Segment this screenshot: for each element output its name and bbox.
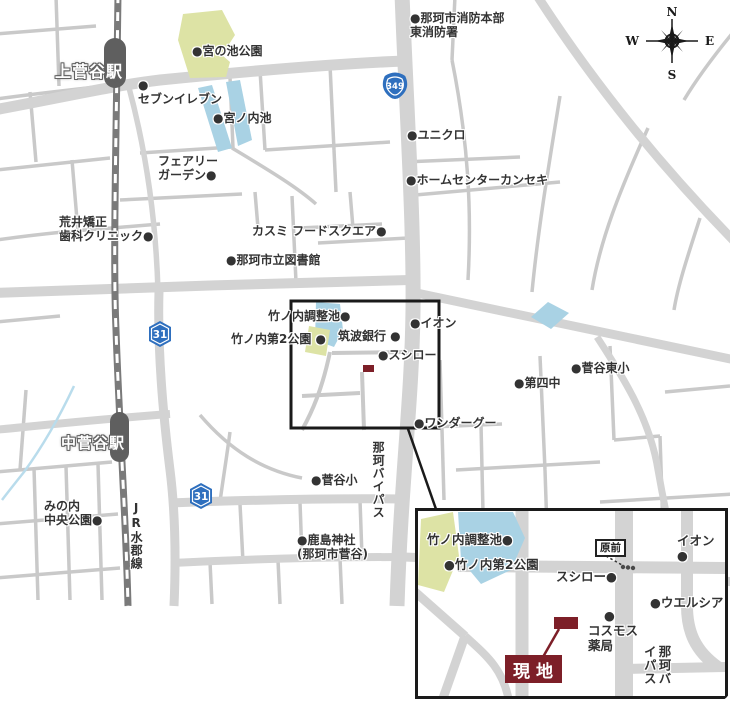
poi-sugaya-elem: ●菅谷小 <box>311 473 357 487</box>
poi-sugaya-higashi-elem: ●菅谷東小 <box>571 361 629 375</box>
poi-wonder-goo: ●ワンダーグー <box>414 416 496 430</box>
poi-naka-library: ●那珂市立図書館 <box>226 253 320 267</box>
inset-poi-aeon: イオン● <box>677 534 725 564</box>
inset-poi-welcia: ●ウエルシア <box>650 596 723 611</box>
compass-e-label: E <box>705 34 714 48</box>
inset-map: 竹ノ内調整池● ●竹ノ内第2公園 スシロー● イオン● ●ウエルシア ● コスモ… <box>415 508 728 699</box>
poi-kashima-shrine: ●鹿島神社 (那珂市菅谷) <box>297 533 368 561</box>
poi-dai4-junior: ●第四中 <box>514 376 560 390</box>
poi-dai2-park: 竹ノ内第2公園 ● <box>231 332 326 346</box>
compass-rose: N S W E <box>625 5 715 82</box>
poi-tsukuba-bank: 筑波銀行 ● <box>338 329 401 343</box>
inset-poi-chosei-pond: 竹ノ内調整池● <box>427 533 513 548</box>
poi-aeon: ●イオン <box>410 316 456 330</box>
route-shield-31-north: 31 <box>149 321 171 347</box>
site-block-streets <box>302 352 408 430</box>
station-label-nakasugaya: 中菅谷駅 <box>61 432 125 453</box>
inset-poi-sushiro: スシロー● <box>556 570 617 585</box>
station-label-kamisugaya: 上菅谷駅 <box>55 58 123 82</box>
route-shield-31-number: 31 <box>153 329 168 341</box>
road-label-naka-bypass: 那珂バイパス <box>371 441 385 519</box>
route-shield-349-number: 349 <box>386 82 404 92</box>
poi-arai-dental: 荒井矯正 歯科クリニック● <box>59 215 153 243</box>
poi-seven-eleven: ● セブンイレブン <box>138 78 222 106</box>
site-callout: 現地 <box>505 655 562 683</box>
poi-miyanouchi-pond: ●宮ノ内池 <box>213 111 271 125</box>
inset-chosei-pond-shape <box>458 512 525 584</box>
inset-dai2-park-shape <box>418 512 459 592</box>
location-map: 349 31 31 N S W E <box>0 0 730 701</box>
zoom-connector-line <box>408 429 437 512</box>
compass-w-label: W <box>625 34 640 48</box>
compass-n-label: N <box>667 5 678 19</box>
route-shield-349: 349 <box>384 74 405 98</box>
inset-road-label-naka-bypass: 那珂バイパス <box>641 645 671 696</box>
rail-label-jr-suigun: JR水郡線 <box>129 501 143 570</box>
bus-stop-sign: 原前 <box>595 539 626 557</box>
poi-sushiro: ●スシロー <box>378 348 436 362</box>
site-marker-main <box>363 365 374 372</box>
poi-kanseki: ●ホームセンターカンセキ <box>406 173 548 187</box>
site-marker-inset <box>554 617 578 629</box>
poi-uniqlo: ●ユニクロ <box>407 128 465 142</box>
inset-poi-dai2-park: ●竹ノ内第2公園 <box>444 558 539 573</box>
inset-poi-cosmos-pharmacy: ● コスモス 薬局 <box>588 609 638 653</box>
site-leader-line <box>543 629 559 657</box>
route-shield-31-number: 31 <box>194 491 209 503</box>
poi-minouchi-park: みの内 中央公園● <box>44 499 102 527</box>
poi-fairy-garden: フェアリー ガーデン● <box>158 154 218 182</box>
compass-s-label: S <box>668 68 677 82</box>
poi-miyanoike-park: ●宮の池公園 <box>192 44 262 58</box>
poi-kasumi-food-square: カスミ フードスクエア● <box>252 224 387 238</box>
poi-chosei-pond: 竹ノ内調整池● <box>268 309 350 323</box>
poi-fire-station: ●那珂市消防本部 東消防署 <box>410 11 504 39</box>
